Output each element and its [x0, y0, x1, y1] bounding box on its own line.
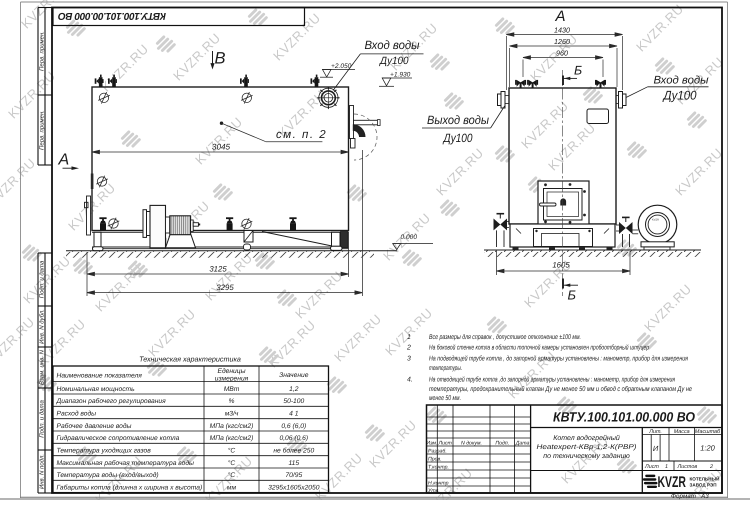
svg-text:°С: °С: [228, 472, 236, 479]
svg-text:Все размеры для справок , допу: Все размеры для справок , допустимое отк…: [429, 334, 581, 341]
svg-text:На отводящей трубе котла ,до з: На отводящей трубе котла ,до запорной ар…: [429, 375, 675, 383]
svg-text:3295: 3295: [216, 283, 234, 292]
svg-text:А: А: [555, 8, 566, 25]
svg-text:Рабочее давление воды: Рабочее давление воды: [57, 423, 132, 430]
svg-text:Ду100: Ду100: [379, 55, 409, 67]
svg-text:МПа (кгс/см2): МПа (кгс/см2): [210, 423, 254, 430]
svg-text:температуры, предохранительный: температуры, предохранительный клапан Ду…: [429, 385, 692, 393]
svg-text:Ду100: Ду100: [442, 131, 473, 145]
svg-text:1: 1: [665, 464, 668, 470]
svg-text:Вход воды: Вход воды: [365, 38, 420, 52]
svg-text:ЗАВОД РЭП: ЗАВОД РЭП: [690, 483, 717, 488]
svg-text:1:20: 1:20: [700, 444, 715, 453]
svg-text:Heatexpert-КВр-1,2-К(РВР): Heatexpert-КВр-1,2-К(РВР): [537, 443, 637, 451]
svg-text:4.: 4.: [407, 376, 413, 383]
svg-text:Габариты котла (длинна х ширин: Габариты котла (длинна х ширина х высота…: [57, 484, 203, 491]
svg-text:4 1: 4 1: [289, 411, 299, 418]
svg-text:Б: Б: [568, 287, 577, 302]
svg-text:м3/ч: м3/ч: [225, 411, 239, 418]
svg-text:Вход воды: Вход воды: [654, 75, 709, 87]
svg-text:°С: °С: [228, 448, 236, 455]
svg-text:Техническая характеристика: Техническая характеристика: [139, 355, 241, 364]
svg-text:измерения: измерения: [215, 376, 249, 383]
svg-text:температуры.: температуры.: [429, 365, 462, 372]
svg-text:Т.контр.: Т.контр.: [428, 465, 449, 471]
svg-text:Температура уходящих газов: Температура уходящих газов: [57, 448, 152, 455]
svg-text:Расход воды: Расход воды: [57, 411, 97, 418]
svg-text:Разраб.: Разраб.: [428, 449, 447, 455]
svg-text:Ду100: Ду100: [662, 88, 697, 102]
svg-text:КВТУ.100.101.00.000 ВО: КВТУ.100.101.00.000 ВО: [553, 410, 695, 425]
svg-text:1605: 1605: [552, 261, 570, 270]
svg-text:см. п. 2: см. п. 2: [276, 129, 327, 141]
svg-text:МПа (кгс/см2): МПа (кгс/см2): [210, 435, 254, 442]
svg-text:Изм.: Изм.: [426, 441, 437, 447]
svg-text:Пров.: Пров.: [428, 457, 442, 463]
svg-text:А: А: [58, 152, 70, 169]
svg-text:А3: А3: [700, 493, 709, 500]
svg-text:Перв. примен.: Перв. примен.: [38, 110, 45, 150]
svg-text:Котел водогрейный: Котел водогрейный: [553, 434, 620, 442]
svg-text:Утв.: Утв.: [428, 488, 440, 494]
svg-text:3125: 3125: [209, 265, 227, 274]
svg-text:Перв. примен.: Перв. примен.: [38, 31, 45, 71]
svg-text:Максимальная рабочая температу: Максимальная рабочая температура воды: [57, 460, 195, 467]
svg-text:не более 250: не более 250: [273, 448, 314, 455]
svg-text:Масштаб: Масштаб: [695, 429, 721, 435]
svg-text:Значение: Значение: [279, 372, 309, 379]
svg-text:Номинальная мощность: Номинальная мощность: [57, 386, 136, 393]
svg-text:Гидравлическое сопротивление к: Гидравлическое сопротивление котла: [57, 435, 180, 442]
svg-text:%: %: [229, 398, 235, 405]
svg-text:Формат: Формат: [671, 493, 696, 500]
svg-text:1: 1: [407, 334, 411, 341]
svg-text:Лист: Лист: [644, 464, 659, 470]
svg-text:Листов: Листов: [677, 464, 698, 470]
svg-text:Лит.: Лит.: [648, 429, 662, 435]
svg-text:Подп. и дата: Подп. и дата: [38, 400, 45, 438]
svg-text:Наименование показателя: Наименование показателя: [57, 373, 143, 380]
svg-text:115: 115: [288, 460, 299, 467]
svg-text:KVZR: KVZR: [658, 474, 687, 491]
svg-text:Б: Б: [574, 64, 582, 78]
svg-text:Масса: Масса: [674, 429, 690, 435]
svg-text:2: 2: [406, 344, 411, 351]
svg-text:1260: 1260: [554, 37, 570, 46]
svg-text:Диапазон рабочего регулировани: Диапазон рабочего регулирования: [56, 398, 167, 405]
svg-text:KVZR: KVZR: [652, 219, 659, 222]
svg-text:менее 50 мм.: менее 50 мм.: [429, 395, 461, 402]
svg-text:КВТУ.100.101.00.000 ВО: КВТУ.100.101.00.000 ВО: [58, 10, 166, 21]
svg-text:0,6 (6,0): 0,6 (6,0): [281, 423, 306, 430]
svg-text:Подп. и дата: Подп. и дата: [38, 260, 45, 298]
svg-text:Инв. N подл.: Инв. N подл.: [38, 454, 45, 489]
svg-text:2: 2: [709, 464, 713, 470]
svg-text:мм: мм: [227, 484, 237, 491]
svg-text:по техническому заданию: по техническому заданию: [543, 452, 630, 460]
svg-text:960: 960: [556, 48, 568, 57]
svg-text:Выход воды: Выход воды: [427, 113, 489, 127]
svg-text:На боковой стенке котла в обла: На боковой стенке котла в области топочн…: [429, 343, 649, 351]
svg-text:50-100: 50-100: [283, 398, 304, 405]
svg-text:70/95: 70/95: [285, 472, 302, 479]
svg-text:Взам. инв. N: Взам. инв. N: [38, 349, 45, 385]
svg-text:Инв. N дубл.: Инв. N дубл.: [38, 309, 45, 344]
svg-text:Еденицы: Еденицы: [217, 368, 245, 375]
svg-text:3: 3: [407, 356, 411, 363]
svg-text:КОТЕЛЬНЫЙ: КОТЕЛЬНЫЙ: [690, 476, 720, 482]
svg-text:N докум.: N докум.: [461, 441, 482, 447]
svg-text:1430: 1430: [554, 25, 570, 34]
svg-text:0,06 (0,6): 0,06 (0,6): [279, 435, 308, 442]
svg-text:МВт: МВт: [224, 386, 240, 393]
svg-text:1,2: 1,2: [289, 386, 299, 393]
svg-text:°С: °С: [228, 460, 236, 467]
svg-text:0.000: 0.000: [401, 234, 418, 241]
svg-text:В: В: [215, 50, 226, 68]
svg-text:Н.контр: Н.контр: [428, 481, 449, 487]
svg-text:3295х1605х2050: 3295х1605х2050: [268, 484, 320, 491]
svg-text:Температура воды (вход/выход): Температура воды (вход/выход): [57, 472, 159, 479]
svg-text:Лист: Лист: [438, 441, 453, 447]
svg-text:3045: 3045: [212, 143, 231, 152]
svg-text:Подп.: Подп.: [495, 441, 509, 447]
svg-text:На подводящей трубе котла ,: На подводящей трубе котла , до запорной …: [429, 355, 688, 363]
svg-text:И: И: [653, 444, 659, 453]
svg-text:Дата: Дата: [515, 441, 530, 447]
